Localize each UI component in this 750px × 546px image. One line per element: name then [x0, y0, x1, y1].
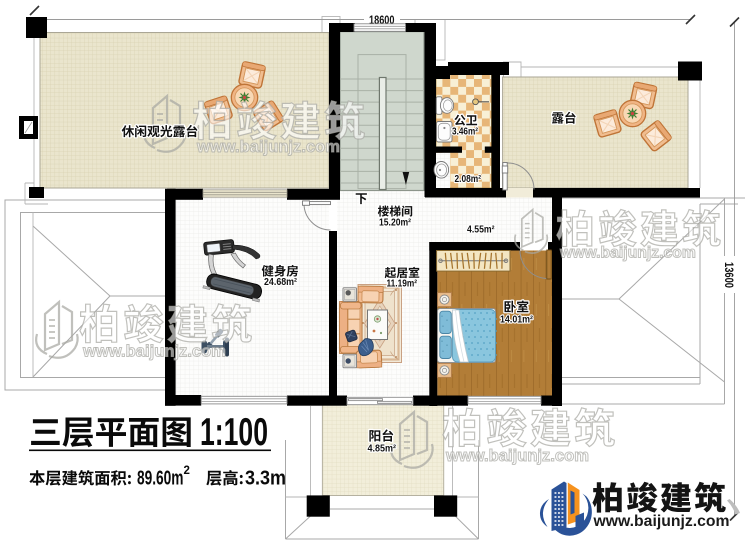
svg-text:14.01m²: 14.01m²	[500, 315, 534, 326]
svg-text:4.55m²: 4.55m²	[467, 225, 495, 236]
svg-text:2: 2	[184, 465, 190, 477]
svg-text:1:100: 1:100	[200, 411, 268, 454]
svg-text:11.19m²: 11.19m²	[387, 279, 418, 290]
svg-text:24.68m²: 24.68m²	[264, 277, 298, 288]
svg-text:13600: 13600	[722, 262, 734, 288]
svg-text:2.08m²: 2.08m²	[455, 174, 482, 185]
svg-text:4.85m²: 4.85m²	[368, 444, 397, 455]
svg-text:www.baijunjz.com: www.baijunjz.com	[82, 343, 226, 361]
svg-text:www.baijunjz.com: www.baijunjz.com	[445, 447, 589, 465]
svg-text:www.baijunjz.com: www.baijunjz.com	[196, 138, 340, 156]
svg-text:15.20m²: 15.20m²	[379, 218, 412, 229]
svg-text:www.baijunjz.com: www.baijunjz.com	[559, 245, 696, 262]
svg-text:89.60m: 89.60m	[137, 468, 184, 490]
svg-text:www.baijunjz.com: www.baijunjz.com	[592, 513, 729, 530]
svg-text:3.46m²: 3.46m²	[452, 127, 479, 138]
svg-text:3.3m: 3.3m	[245, 468, 286, 490]
